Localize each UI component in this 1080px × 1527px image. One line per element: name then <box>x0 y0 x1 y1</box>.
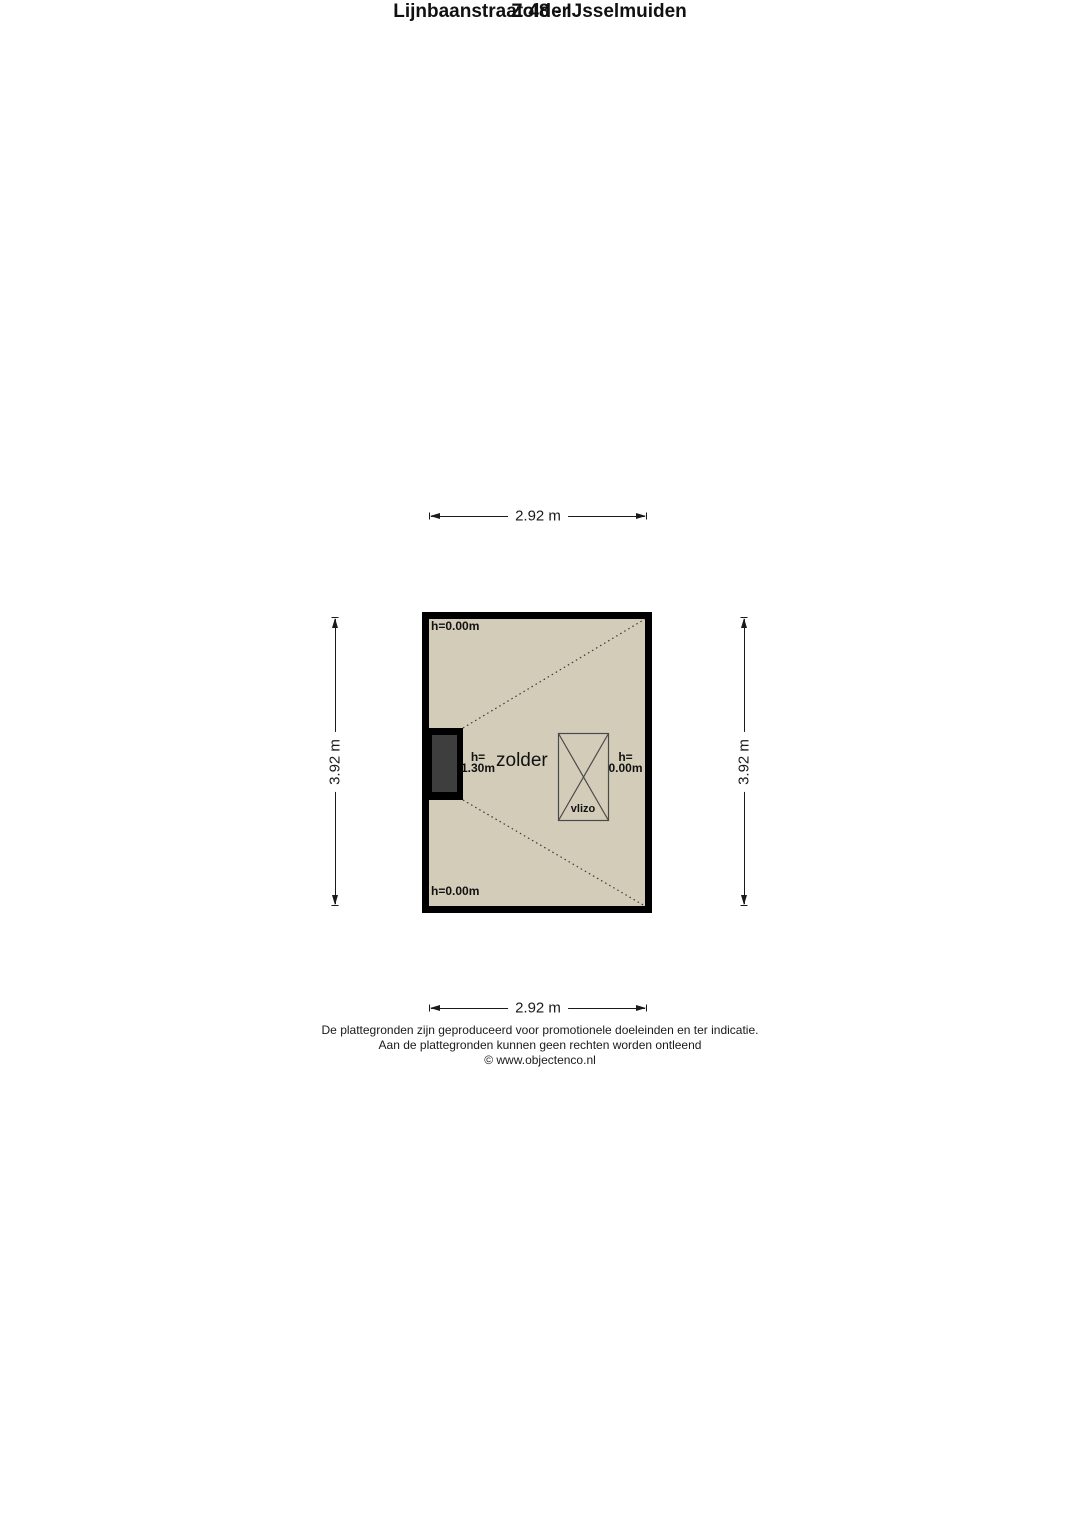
height-label-right: h= 0.00m <box>603 752 648 774</box>
arrow-right-icon <box>636 1005 646 1011</box>
dimension-end-tick <box>332 905 339 906</box>
dimension-left: 3.92 m <box>327 617 343 906</box>
arrow-left-icon <box>430 513 440 519</box>
dimension-left-label: 3.92 m <box>327 732 344 792</box>
room-outline: h=0.00m h= 1.30m zolder h= 0.00m vlizo h… <box>422 612 652 913</box>
dimension-top: 2.92 m <box>429 508 647 524</box>
footer-disclaimer-line2: Aan de plattegronden kunnen geen rechten… <box>0 1038 1080 1052</box>
height-label-top-left: h=0.00m <box>431 620 479 633</box>
arrow-down-icon <box>741 895 747 905</box>
room-name-label: zolder <box>496 750 548 772</box>
arrow-left-icon <box>430 1005 440 1011</box>
footer-disclaimer-line1: De plattegronden zijn geproduceerd voor … <box>0 1023 1080 1037</box>
dimension-bottom-label: 2.92 m <box>508 1000 568 1017</box>
floorplan-page: Lijnbaanstraat 48 - IJsselmuiden Zolder … <box>0 0 1080 1527</box>
height-label-left-line2: 1.30m <box>455 763 501 774</box>
footer-copyright: © www.objectenco.nl <box>0 1053 1080 1067</box>
dimension-right: 3.92 m <box>736 617 752 906</box>
arrow-right-icon <box>636 513 646 519</box>
dimension-right-label: 3.92 m <box>736 732 753 792</box>
page-subtitle: Zolder <box>0 0 1080 23</box>
arrow-up-icon <box>332 618 338 628</box>
dimension-end-tick <box>741 905 748 906</box>
dimension-top-label: 2.92 m <box>508 508 568 525</box>
height-label-bottom-left: h=0.00m <box>431 885 479 898</box>
dimension-end-tick <box>646 513 647 520</box>
chimney-fill <box>432 735 457 792</box>
arrow-up-icon <box>741 618 747 628</box>
height-label-right-line2: 0.00m <box>603 763 648 774</box>
arrow-down-icon <box>332 895 338 905</box>
height-label-left: h= 1.30m <box>455 752 501 774</box>
vlizo-hatch-label: vlizo <box>558 803 608 815</box>
dimension-bottom: 2.92 m <box>429 1000 647 1016</box>
dimension-end-tick <box>646 1005 647 1012</box>
